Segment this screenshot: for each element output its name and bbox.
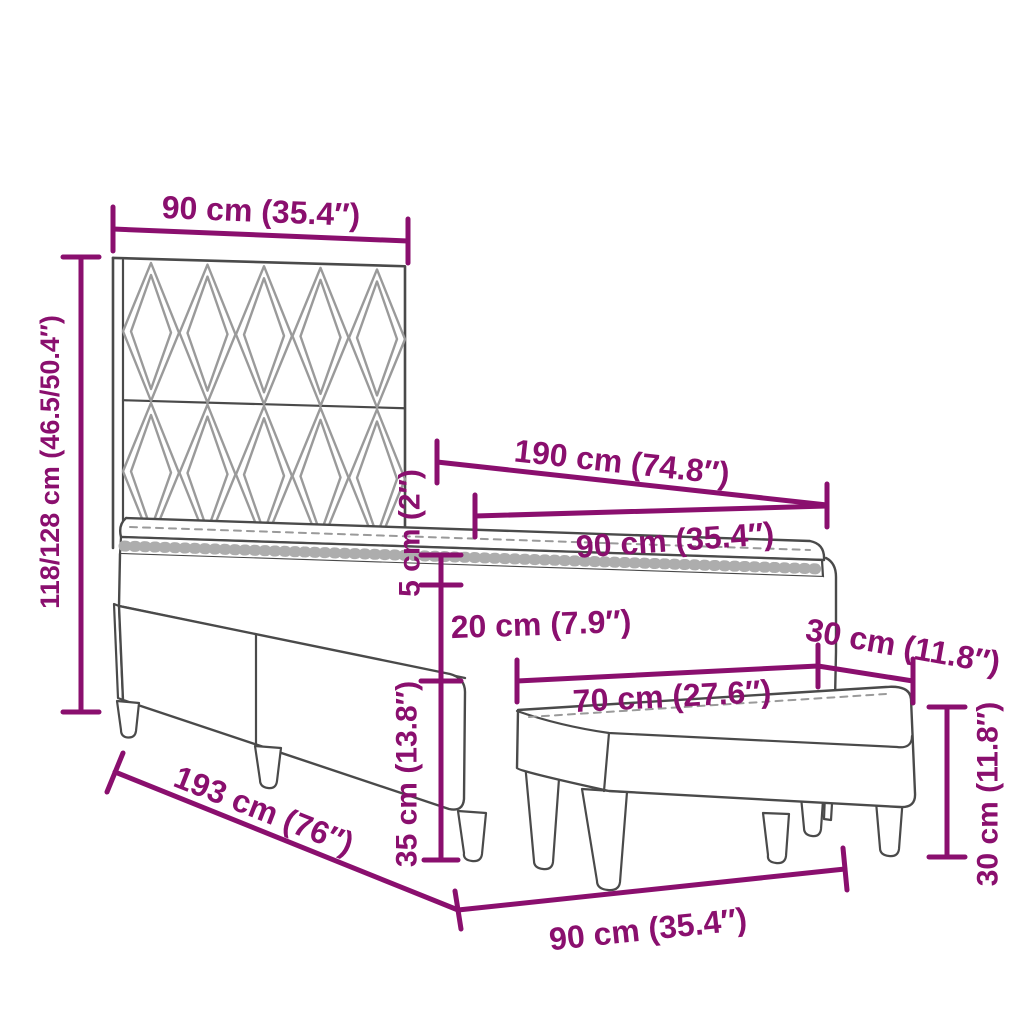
label-mattress-thickness: 20 cm (7.9″): [450, 603, 632, 645]
label-bed-floor-width: 90 cm (35.4″): [547, 901, 748, 958]
label-base-height: 35 cm (13.8″): [391, 681, 424, 867]
headboard: [113, 258, 405, 556]
dim-bed-floor-width-line: [458, 848, 847, 910]
bench-leg-front-left: [582, 789, 627, 890]
bed-leg-front-left: [117, 701, 139, 738]
label-bench-height: 30 cm (11.8″): [972, 702, 1005, 886]
bed-diagram-canvas: 90 cm (35.4″) 118/128 cm (46.5/50.4″) 19…: [0, 0, 1024, 1024]
label-headboard-width: 90 cm (35.4″): [161, 189, 361, 233]
dimension-diagram: 90 cm (35.4″) 118/128 cm (46.5/50.4″) 19…: [0, 0, 1024, 1024]
dim-bench-height-line: [929, 707, 965, 857]
label-bed-height: 118/128 cm (46.5/50.4″): [35, 315, 65, 609]
dim-bed-height-line: [63, 257, 99, 712]
bed-leg-front-middle: [255, 746, 281, 788]
label-topper-thickness: 5 cm (2″): [394, 469, 427, 597]
bed-leg-front-right: [458, 811, 486, 861]
bed-leg-rear-right: [763, 813, 789, 863]
